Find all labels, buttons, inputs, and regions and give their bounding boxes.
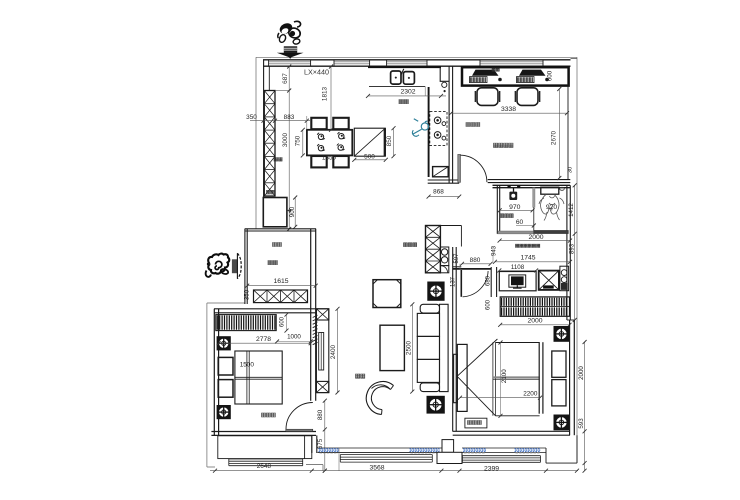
svg-text:680: 680 bbox=[486, 275, 492, 286]
svg-text:880: 880 bbox=[317, 409, 324, 420]
svg-text:2000: 2000 bbox=[527, 318, 542, 325]
svg-text:2500: 2500 bbox=[406, 340, 413, 355]
svg-text:1745: 1745 bbox=[520, 255, 535, 262]
svg-text:1000: 1000 bbox=[287, 334, 301, 341]
svg-text:600: 600 bbox=[486, 299, 492, 310]
svg-text:2100: 2100 bbox=[501, 369, 508, 383]
svg-text:920: 920 bbox=[546, 204, 558, 211]
svg-text:943: 943 bbox=[491, 245, 497, 256]
svg-text:893: 893 bbox=[569, 243, 576, 254]
svg-text:687: 687 bbox=[282, 73, 289, 84]
svg-text:600: 600 bbox=[280, 316, 286, 327]
svg-text:2648: 2648 bbox=[257, 463, 272, 470]
svg-text:500: 500 bbox=[364, 153, 375, 160]
svg-text:750: 750 bbox=[295, 135, 302, 146]
svg-text:600: 600 bbox=[547, 70, 554, 81]
svg-text:2200: 2200 bbox=[523, 391, 538, 398]
svg-text:1500: 1500 bbox=[240, 362, 255, 369]
svg-text:675: 675 bbox=[317, 438, 324, 449]
svg-text:2000: 2000 bbox=[528, 234, 543, 241]
svg-text:30: 30 bbox=[568, 167, 574, 173]
svg-text:3338: 3338 bbox=[501, 106, 516, 113]
svg-text:880: 880 bbox=[470, 257, 481, 264]
svg-text:597: 597 bbox=[454, 253, 460, 264]
svg-text:350: 350 bbox=[246, 114, 257, 121]
svg-text:60: 60 bbox=[516, 219, 524, 226]
svg-text:2399: 2399 bbox=[484, 466, 499, 473]
svg-text:3000: 3000 bbox=[282, 132, 289, 147]
svg-text:350: 350 bbox=[243, 289, 250, 300]
svg-text:1615: 1615 bbox=[273, 278, 288, 285]
svg-text:850: 850 bbox=[386, 135, 393, 146]
svg-text:2000: 2000 bbox=[578, 366, 585, 380]
svg-text:1412: 1412 bbox=[568, 203, 575, 217]
svg-text:LX×440: LX×440 bbox=[304, 68, 329, 77]
svg-text:2400: 2400 bbox=[330, 344, 337, 359]
svg-text:2778: 2778 bbox=[256, 336, 271, 343]
svg-text:868: 868 bbox=[433, 189, 444, 196]
svg-text:2670: 2670 bbox=[551, 130, 558, 145]
svg-text:900: 900 bbox=[289, 206, 296, 217]
svg-text:883: 883 bbox=[284, 114, 295, 121]
svg-text:137: 137 bbox=[450, 276, 456, 287]
svg-text:2302: 2302 bbox=[400, 88, 415, 95]
svg-text:593: 593 bbox=[578, 418, 585, 429]
svg-text:970: 970 bbox=[509, 204, 521, 211]
svg-text:1813: 1813 bbox=[321, 86, 328, 101]
svg-text:1350: 1350 bbox=[322, 154, 337, 161]
svg-text:1108: 1108 bbox=[511, 264, 525, 271]
